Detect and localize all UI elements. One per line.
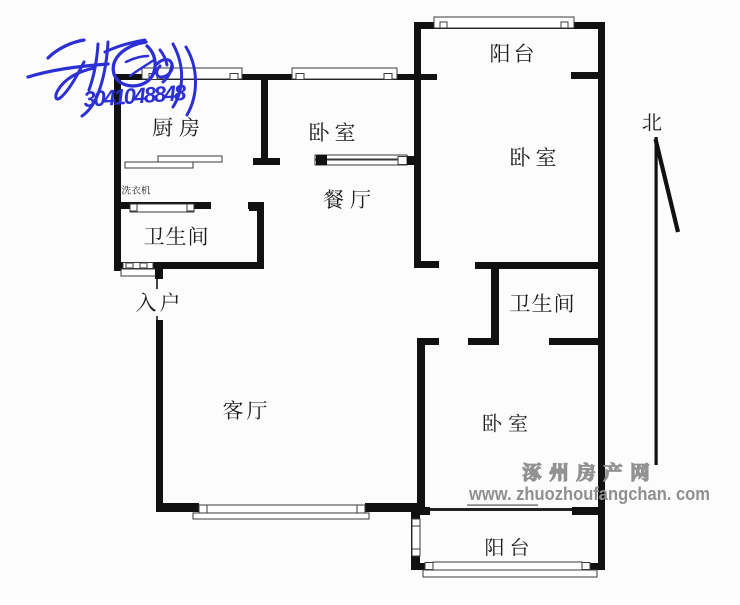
- svg-text:www. zhuozhoufangchan. com: www. zhuozhoufangchan. com: [468, 483, 710, 504]
